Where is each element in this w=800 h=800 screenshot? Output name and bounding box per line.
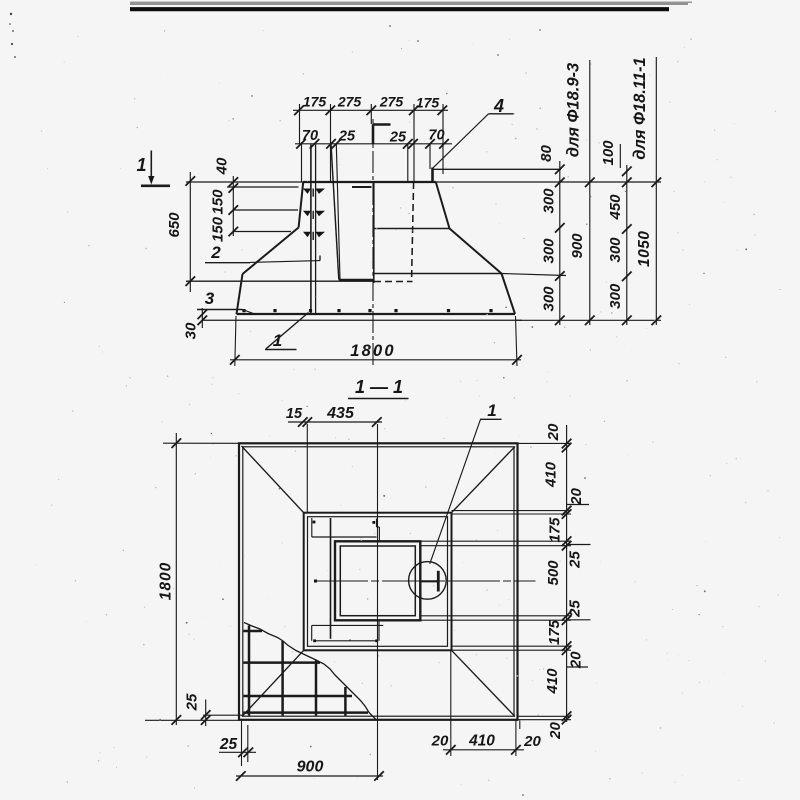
svg-text:25: 25	[219, 736, 238, 753]
svg-text:4: 4	[493, 96, 504, 116]
svg-text:150: 150	[210, 216, 227, 242]
svg-text:300: 300	[541, 188, 558, 214]
svg-text:100: 100	[600, 140, 617, 166]
svg-text:900: 900	[569, 233, 586, 259]
svg-text:275: 275	[379, 94, 404, 110]
svg-text:175: 175	[547, 517, 564, 543]
svg-text:410: 410	[544, 668, 561, 695]
svg-text:15: 15	[286, 406, 303, 422]
svg-text:500: 500	[545, 560, 562, 586]
svg-text:450: 450	[607, 194, 624, 221]
svg-text:80: 80	[538, 145, 555, 162]
svg-text:900: 900	[297, 759, 324, 776]
svg-text:300: 300	[541, 286, 558, 312]
svg-text:70: 70	[428, 128, 444, 144]
svg-text:25: 25	[338, 129, 356, 145]
svg-text:20: 20	[431, 733, 449, 750]
svg-text:410: 410	[468, 733, 495, 750]
svg-text:175: 175	[416, 95, 440, 111]
svg-text:650: 650	[166, 212, 183, 238]
svg-text:для Ф18.11-1: для Ф18.11-1	[631, 57, 649, 159]
svg-text:1800: 1800	[158, 562, 175, 600]
svg-text:3: 3	[205, 289, 215, 308]
svg-text:175: 175	[303, 94, 327, 110]
svg-text:300: 300	[607, 237, 624, 263]
svg-text:20: 20	[523, 733, 541, 750]
svg-text:20: 20	[568, 488, 585, 506]
svg-text:25: 25	[389, 130, 407, 146]
svg-text:150: 150	[210, 189, 227, 215]
svg-text:20: 20	[568, 651, 585, 669]
svg-text:25: 25	[567, 551, 584, 569]
svg-text:1 — 1: 1 — 1	[355, 377, 403, 397]
svg-text:25: 25	[184, 693, 201, 711]
svg-text:300: 300	[607, 283, 624, 309]
svg-text:20: 20	[545, 423, 562, 441]
svg-text:175: 175	[546, 619, 563, 645]
svg-text:для Ф18.9-3: для Ф18.9-3	[565, 63, 583, 157]
svg-text:70: 70	[302, 128, 318, 144]
svg-text:435: 435	[326, 405, 355, 422]
svg-text:25: 25	[567, 600, 584, 618]
svg-text:275: 275	[337, 94, 362, 110]
svg-text:2: 2	[210, 243, 221, 262]
svg-text:30: 30	[183, 322, 200, 339]
svg-text:1: 1	[273, 331, 282, 350]
svg-text:1800: 1800	[350, 342, 396, 360]
svg-text:410: 410	[543, 461, 560, 488]
svg-text:1050: 1050	[636, 231, 653, 267]
svg-text:1: 1	[487, 401, 496, 420]
svg-text:20: 20	[547, 722, 564, 740]
svg-text:1: 1	[136, 155, 146, 175]
svg-text:300: 300	[541, 238, 558, 264]
